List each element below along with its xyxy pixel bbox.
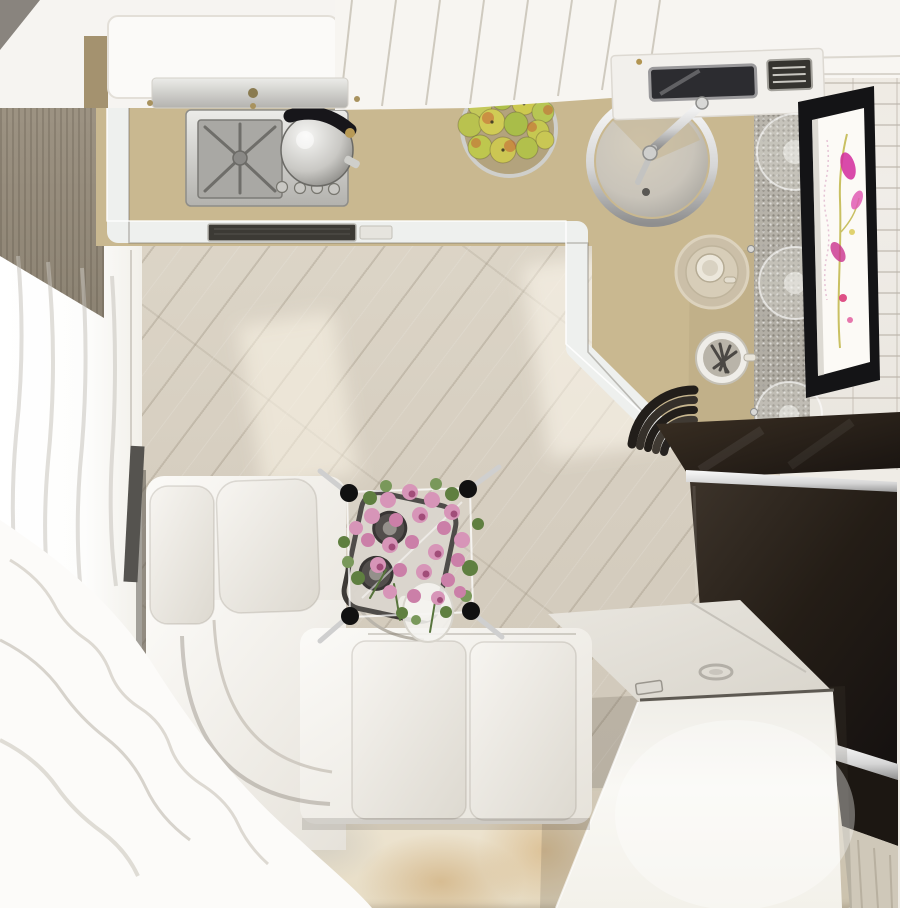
room-top-view xyxy=(0,0,900,908)
cup-and-saucer xyxy=(676,236,748,308)
vent-grille xyxy=(208,224,392,241)
scene-vector xyxy=(0,0,900,908)
built-in-microwave xyxy=(611,48,825,119)
wall-screen-artwork xyxy=(798,86,880,398)
